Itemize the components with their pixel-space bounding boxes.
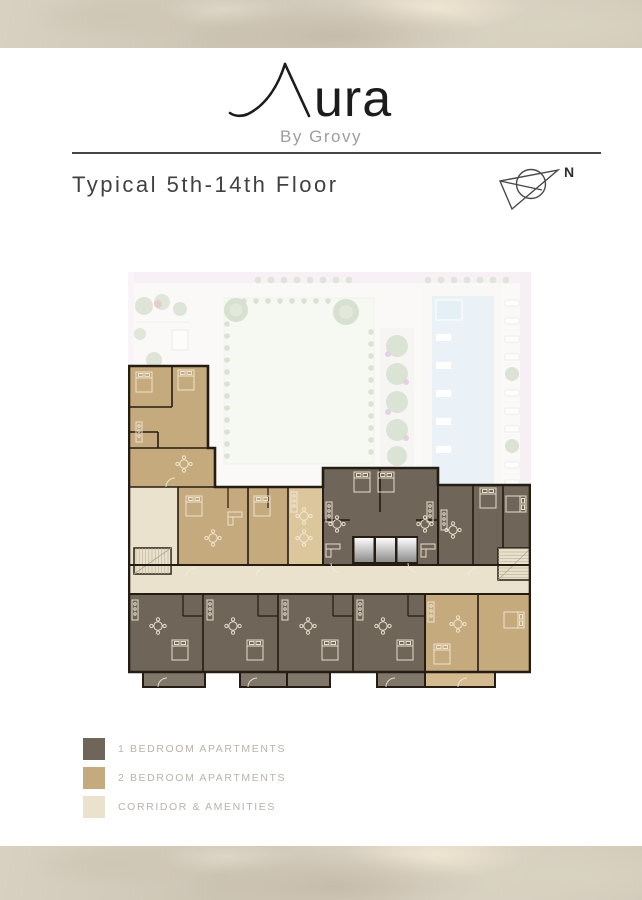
bottom-texture-band xyxy=(0,846,642,900)
floor-plan-drawing xyxy=(128,272,531,692)
logo-aura: ura xyxy=(226,58,416,120)
elevator-core xyxy=(352,536,418,564)
jacuzzi xyxy=(436,300,462,320)
balcony-dark xyxy=(143,672,205,688)
legend-item-corridor: CORRIDOR & AMENITIES xyxy=(83,796,286,818)
legend-label-1br: 1 BEDROOM APARTMENTS xyxy=(118,743,286,755)
legend-item-1br: 1 BEDROOM APARTMENTS xyxy=(83,738,286,760)
balcony-tan xyxy=(425,672,495,688)
legend-label-2br: 2 BEDROOM APARTMENTS xyxy=(118,772,286,784)
compass-icon: N xyxy=(488,158,603,220)
balcony-dark xyxy=(240,672,330,688)
legend-swatch-corridor xyxy=(83,796,105,818)
page-title: Typical 5th-14th Floor xyxy=(72,172,339,198)
legend-swatch-2br xyxy=(83,767,105,789)
floor-plan xyxy=(128,272,531,692)
legend: 1 BEDROOM APARTMENTS 2 BEDROOM APARTMENT… xyxy=(83,738,286,825)
logo-tagline: By Grovy xyxy=(0,127,642,147)
logo-a-glyph xyxy=(230,64,309,116)
legend-swatch-1br xyxy=(83,738,105,760)
unit-2br-dining xyxy=(288,487,323,565)
header-divider xyxy=(72,152,601,154)
legend-label-corridor: CORRIDOR & AMENITIES xyxy=(118,801,276,813)
logo: ura By Grovy xyxy=(0,58,642,147)
corridor xyxy=(128,565,531,594)
legend-item-2br: 2 BEDROOM APARTMENTS xyxy=(83,767,286,789)
balcony-dark xyxy=(377,672,425,688)
compass-north-label: N xyxy=(564,164,574,180)
logo-text: ura xyxy=(314,70,392,120)
top-texture-band xyxy=(0,0,642,48)
